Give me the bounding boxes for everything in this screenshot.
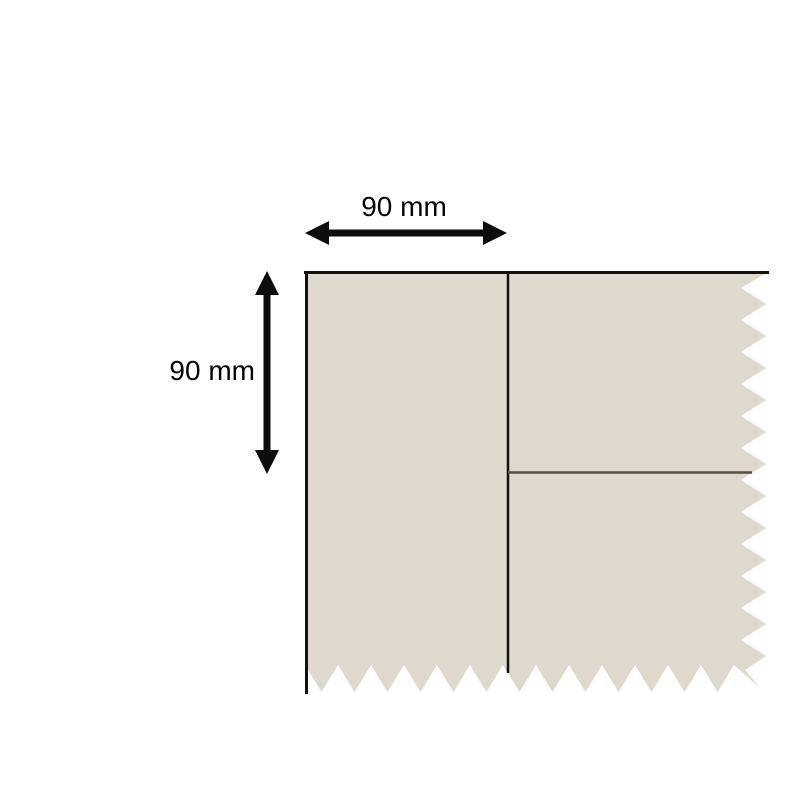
arrowhead-up-icon [255, 271, 279, 295]
width-dimension-arrow [305, 221, 507, 245]
diagram-canvas: 90 mm 90 mm [0, 0, 800, 800]
height-dimension-label: 90 mm [140, 355, 255, 387]
fabric-diagram [0, 0, 800, 800]
height-dimension-arrow [255, 271, 279, 474]
width-dimension-label: 90 mm [344, 191, 464, 223]
fabric-swatch [305, 272, 768, 692]
arrowhead-right-icon [483, 221, 507, 245]
arrowhead-left-icon [305, 221, 329, 245]
arrowhead-down-icon [255, 450, 279, 474]
